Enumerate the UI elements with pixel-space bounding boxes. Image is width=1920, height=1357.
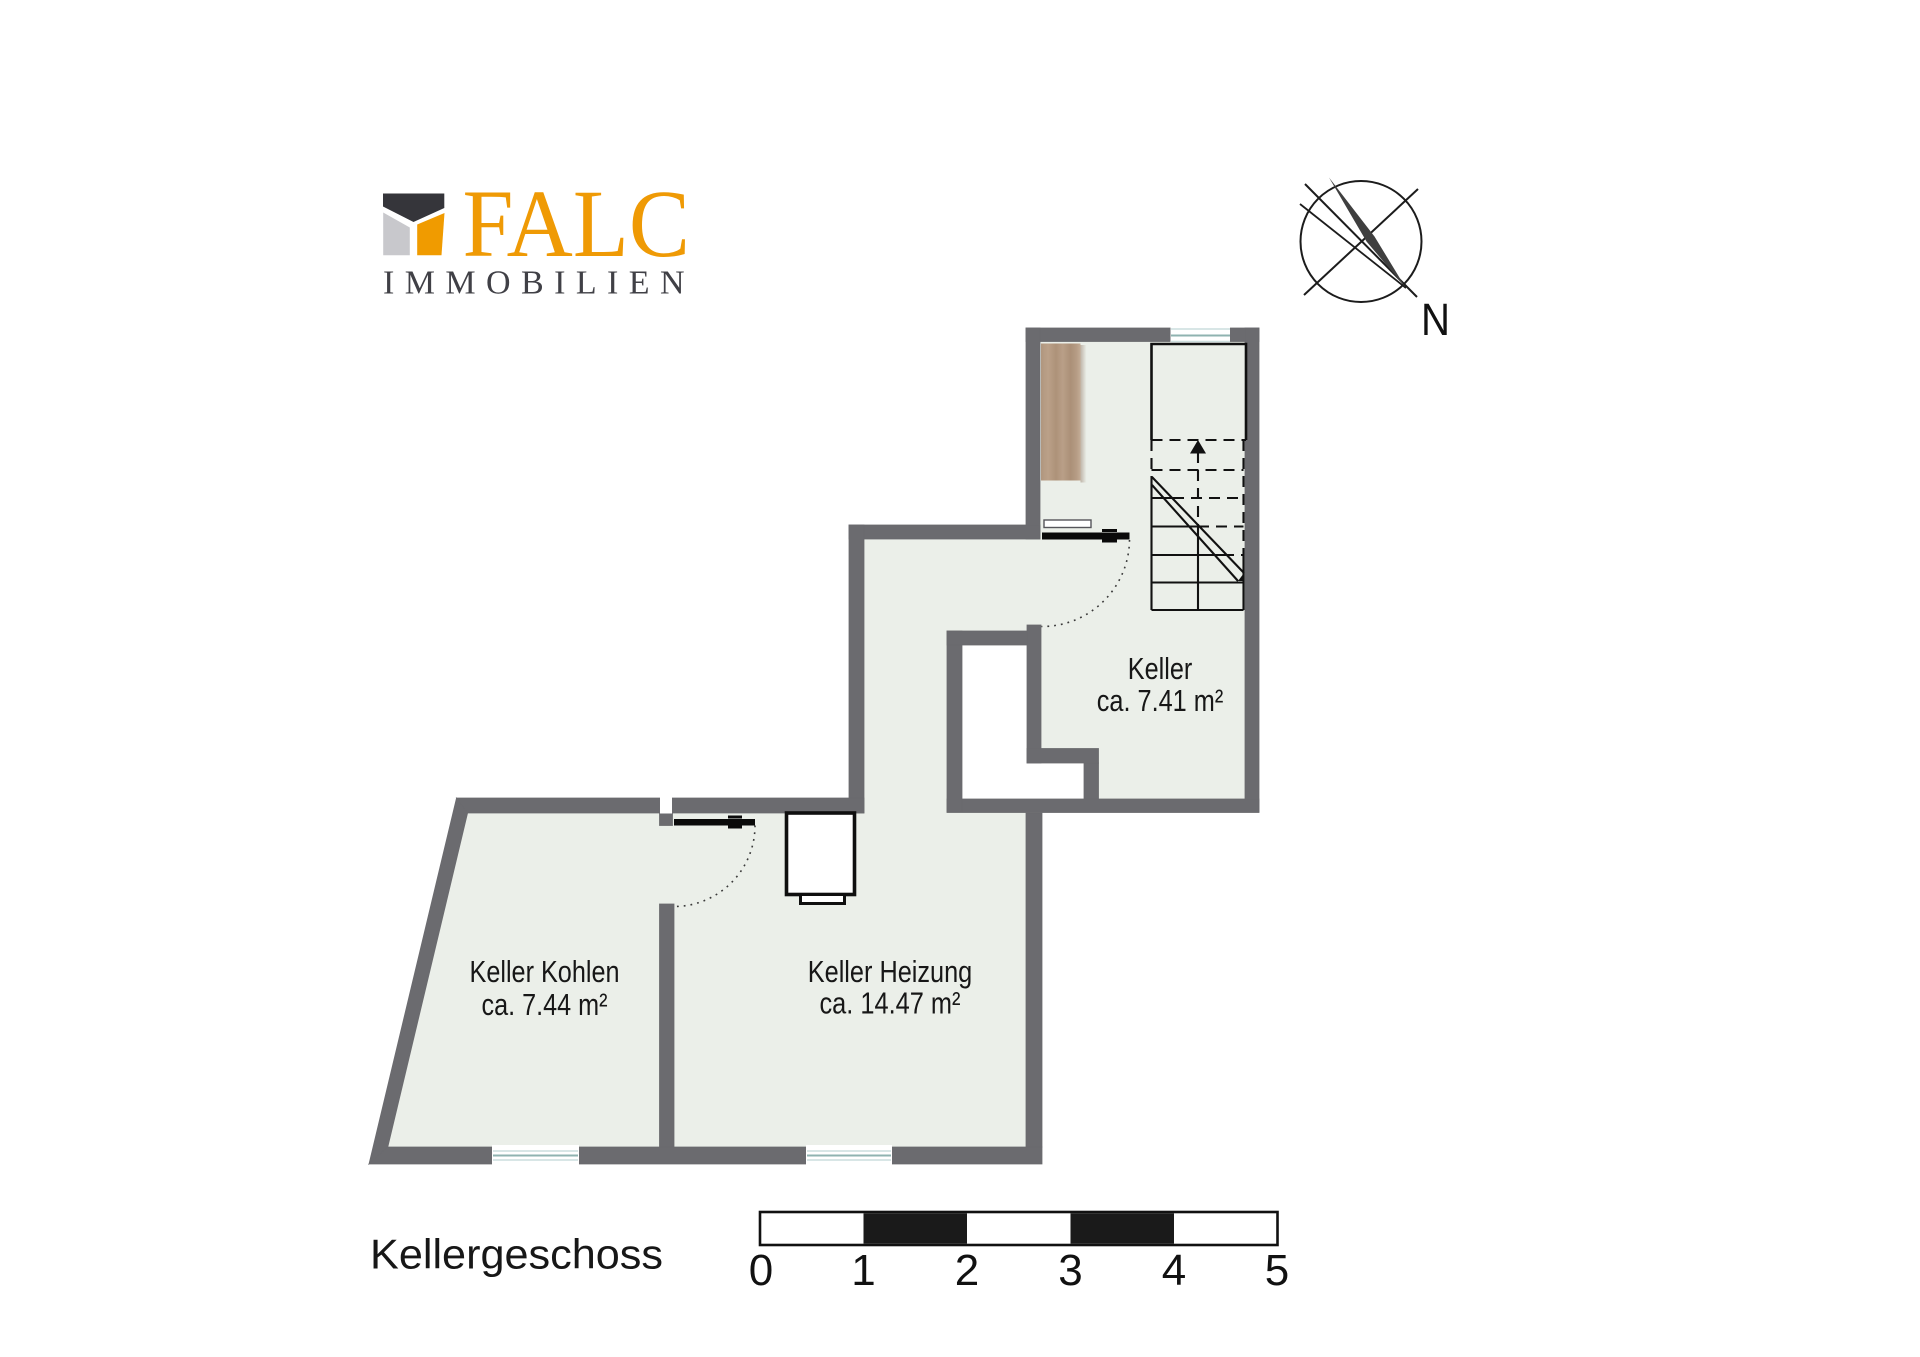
svg-text:ca. 14.47 m²: ca. 14.47 m² [820,986,961,1021]
svg-text:4: 4 [1162,1246,1186,1295]
svg-text:Kellergeschoss: Kellergeschoss [370,1231,663,1278]
svg-text:FALC: FALC [463,170,691,277]
svg-text:N: N [1421,294,1450,345]
svg-text:5: 5 [1265,1246,1289,1295]
svg-text:0: 0 [749,1246,773,1295]
svg-text:Keller: Keller [1128,651,1193,686]
svg-text:ca. 7.41 m²: ca. 7.41 m² [1097,683,1224,718]
svg-text:ca. 7.44 m²: ca. 7.44 m² [482,987,608,1022]
svg-text:2: 2 [955,1246,979,1295]
svg-text:1: 1 [851,1246,875,1295]
svg-text:Keller Kohlen: Keller Kohlen [470,954,620,989]
svg-text:3: 3 [1058,1246,1082,1295]
svg-text:IMMOBILIEN: IMMOBILIEN [383,265,685,302]
svg-text:Keller Heizung: Keller Heizung [808,954,973,989]
